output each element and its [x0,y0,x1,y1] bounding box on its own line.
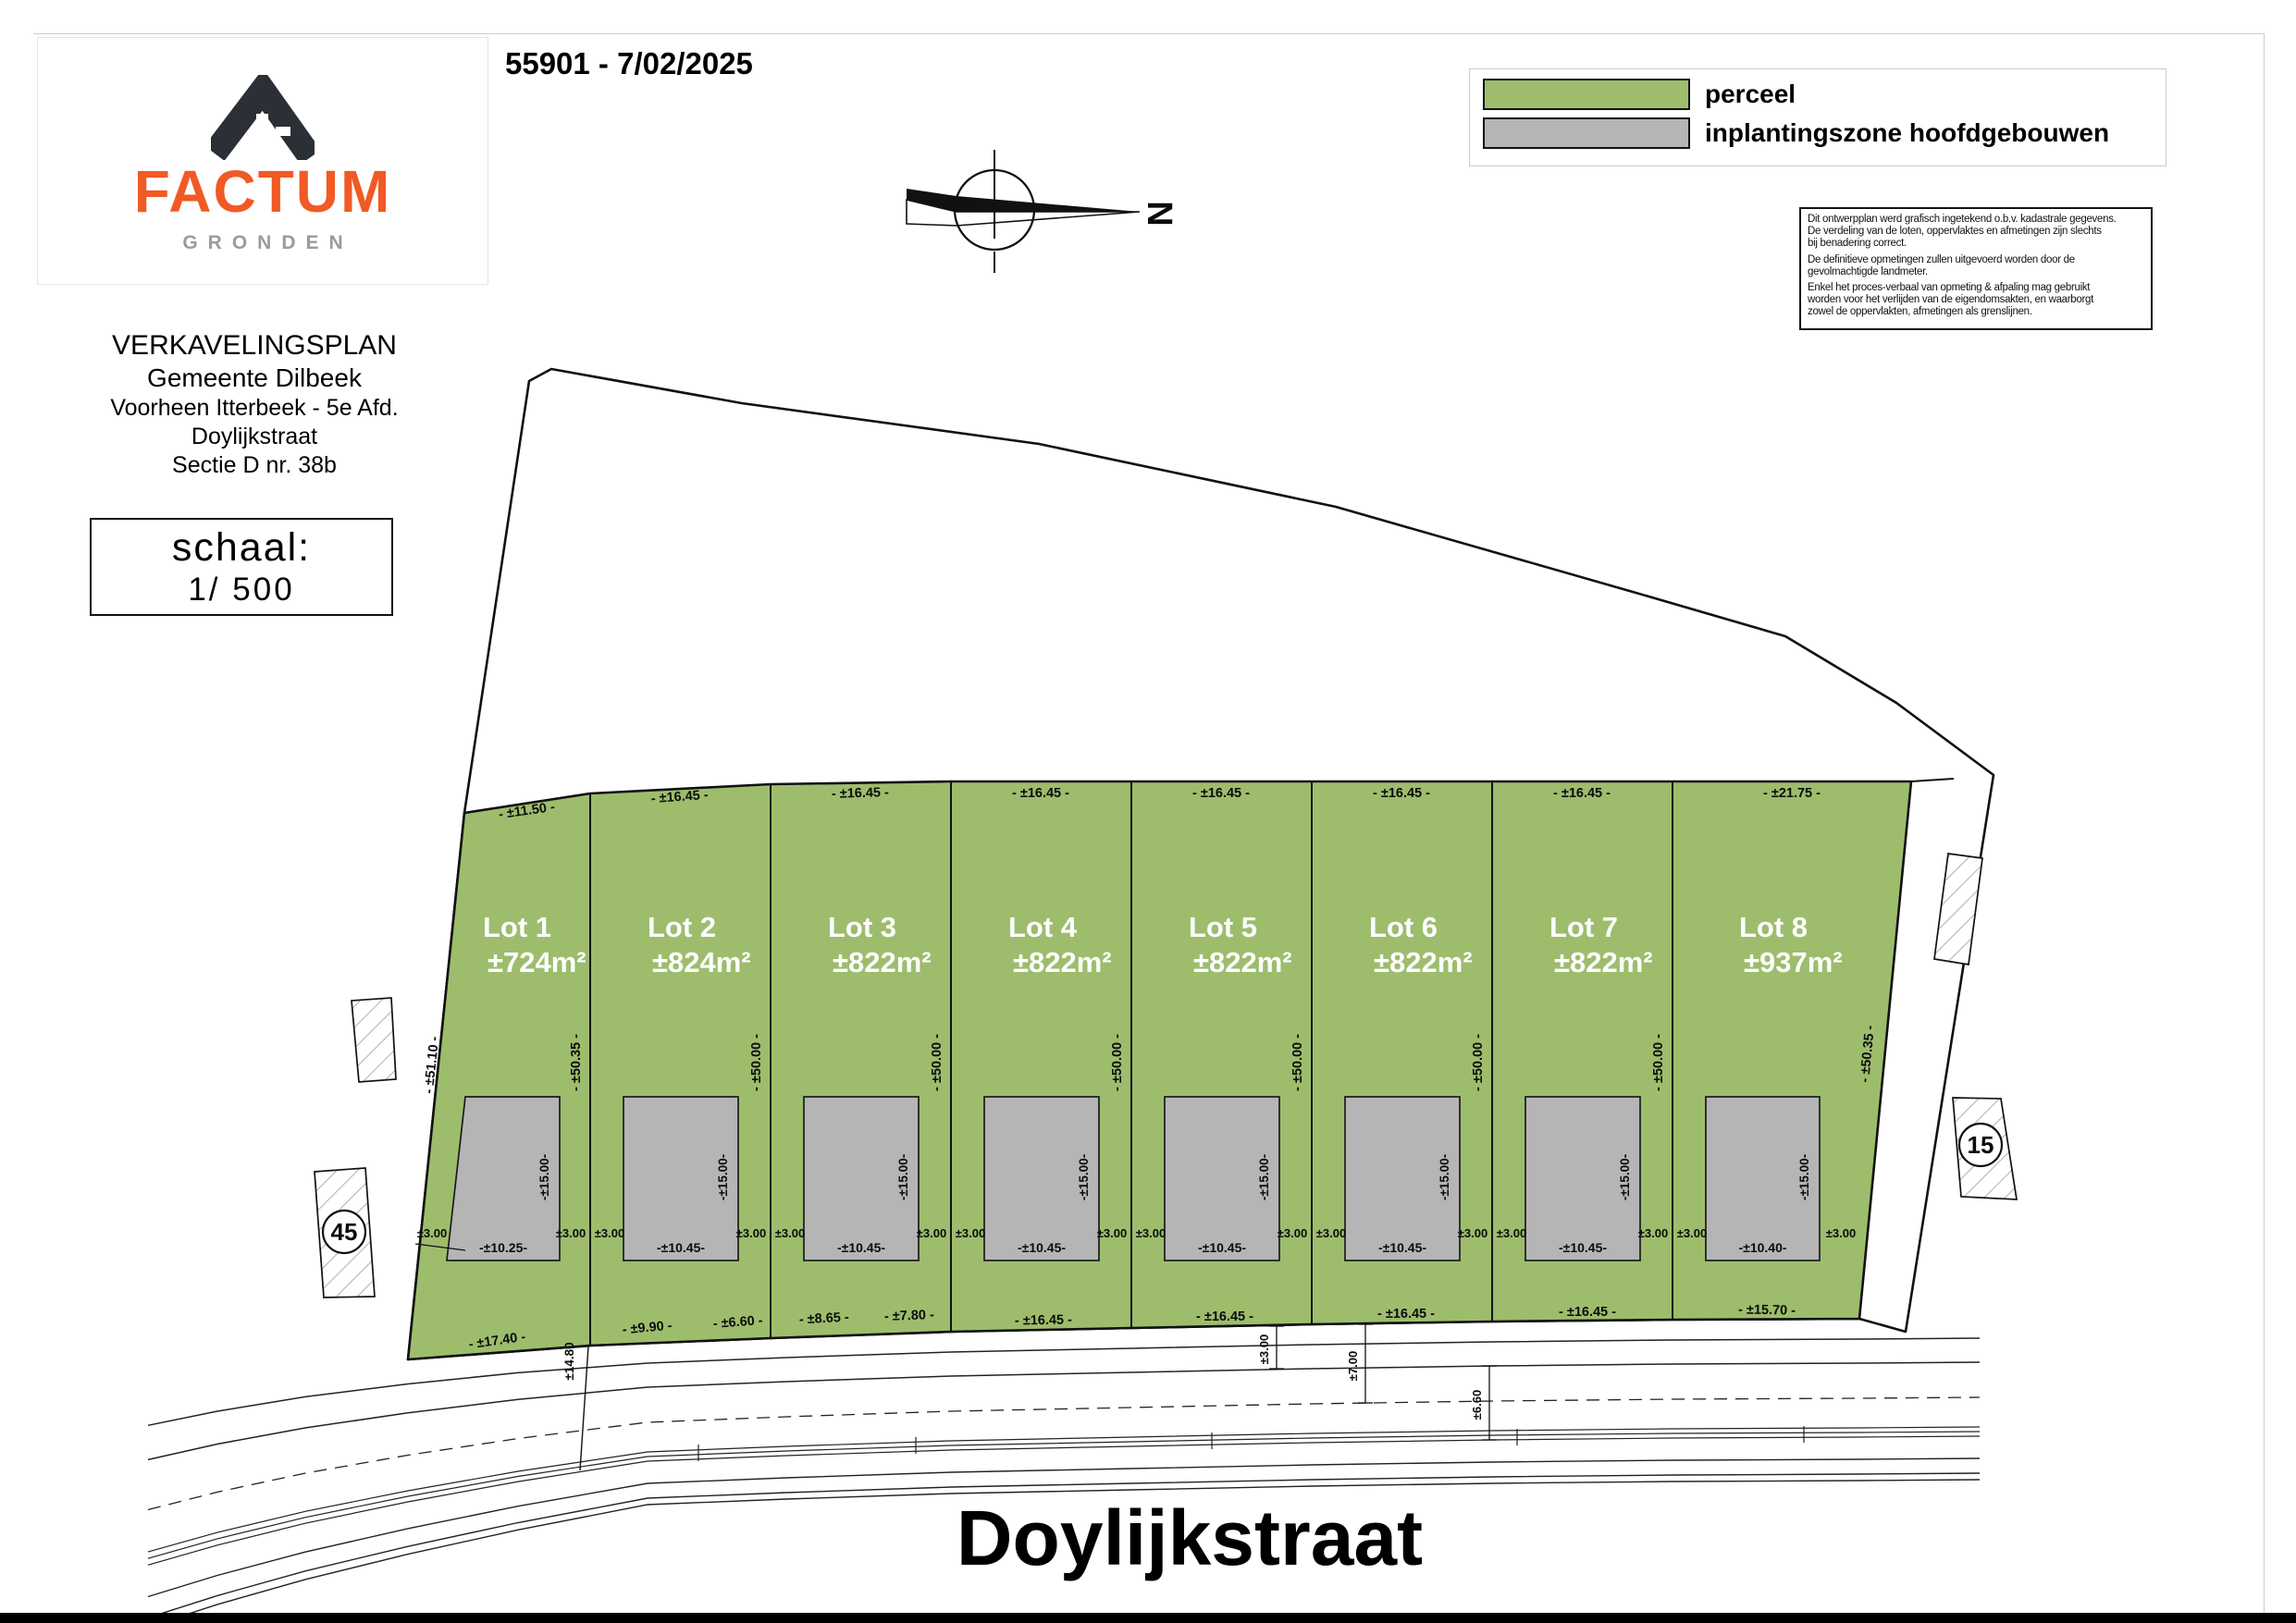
lot-area-label: ±937m² [1744,946,1843,978]
lot-depth-label: - ±50.00 - [749,1034,764,1091]
setback-label: ±3.00 [1278,1226,1307,1240]
setback-label: ±3.00 [736,1226,766,1240]
setback-label: ±3.00 [595,1226,624,1240]
setback-label: ±3.00 [1677,1226,1707,1240]
zone-width-label: -±10.45- [1198,1240,1246,1255]
setback-label: ±3.00 [956,1226,985,1240]
lot-top-width-label: - ±16.45 - [1012,786,1069,801]
setback-label: ±3.00 [1497,1226,1526,1240]
lot-depth-label: - ±50.00 - [1290,1034,1305,1091]
lot-top-width-label: - ±16.45 - [1373,786,1430,801]
frontage-width-label: - ±16.45 - [1196,1309,1253,1324]
zone-depth-label: -±15.00- [1797,1154,1811,1200]
zone-width-label: -±10.25- [479,1240,527,1255]
zone-depth-label: -±15.00- [1077,1154,1091,1200]
lot-depth-label: - ±50.00 - [1651,1034,1666,1091]
setback-label: ±3.00 [917,1226,946,1240]
frontage-width-label: - ±15.70 - [1738,1302,1796,1318]
road-dimension-label: ±14.80 [562,1342,576,1380]
lot-top-width-label: - ±16.45 - [1553,786,1611,801]
lot-name-label: Lot 1 [483,911,551,943]
lot-name-label: Lot 2 [648,911,716,943]
dimension-line [580,1346,588,1470]
lot-name-label: Lot 4 [1008,911,1078,943]
lot-area-label: ±822m² [1193,946,1292,978]
zone-width-label: -±10.45- [1378,1240,1426,1255]
setback-label: ±3.00 [556,1226,586,1240]
frontage-width-label: - ±16.45 - [1559,1305,1616,1320]
road-centerline-dashed [148,1397,1980,1510]
lot-depth-label: - ±50.00 - [1110,1034,1125,1091]
lot-depth-label: - ±50.00 - [930,1034,944,1091]
verkavelingsplan-sheet: FACTUM GRONDEN 55901 - 7/02/2025 perceel… [0,0,2296,1623]
road-edge-line [148,1362,1980,1459]
lot-area-label: ±822m² [1374,946,1473,978]
zone-width-label: -±10.45- [1018,1240,1066,1255]
setback-label: ±3.00 [1826,1226,1856,1240]
zone-depth-label: -±15.00- [896,1154,910,1200]
lot-name-label: Lot 3 [828,911,896,943]
setback-label: ±3.00 [1316,1226,1346,1240]
lot-area-label: ±824m² [652,946,751,978]
setback-label: ±3.00 [1638,1226,1668,1240]
lot-depth-label: - ±50.35 - [569,1034,584,1091]
parcel-strip [408,781,1911,1359]
setback-label: ±3.00 [417,1226,447,1240]
lot-area-label: ±822m² [1554,946,1653,978]
road-dimension-label: ±3.00 [1257,1334,1271,1364]
zone-depth-label: -±15.00- [1618,1154,1632,1200]
lot-top-width-label: - ±21.75 - [1763,786,1821,801]
lot-top-width-label: - ±16.45 - [832,785,890,802]
setback-label: ±3.00 [1136,1226,1166,1240]
zone-width-label: -±10.40- [1738,1240,1786,1255]
lot-name-label: Lot 6 [1369,911,1438,943]
frontage-width-label: - ±7.80 - [884,1308,935,1324]
setback-label: ±3.00 [775,1226,805,1240]
lot-area-label: ±822m² [1013,946,1112,978]
lot-name-label: Lot 7 [1549,911,1618,943]
site-plan-drawing: 4515 Lot 1±724m²Lot 2±824m²Lot 3±822m²Lo… [0,0,2296,1623]
lot-top-width-label: - ±16.45 - [1192,786,1250,801]
neighbor-building [352,998,396,1082]
zone-depth-label: -±15.00- [537,1154,551,1200]
zone-width-label: -±10.45- [657,1240,705,1255]
lot-area-label: ±724m² [488,946,586,978]
zone-width-label: -±10.45- [837,1240,885,1255]
street-name-label: Doylijkstraat [957,1494,1423,1581]
lot-name-label: Lot 5 [1189,911,1257,943]
frontage-width-label: - ±16.45 - [1377,1307,1435,1322]
zone-depth-label: -±15.00- [716,1154,730,1200]
house-number-left: 45 [331,1218,358,1246]
north-label: N [1140,201,1179,226]
zone-depth-label: -±15.00- [1438,1154,1451,1200]
frontage-width-label: - ±8.65 - [798,1310,849,1328]
zone-depth-label: -±15.00- [1257,1154,1271,1200]
sheet-bottom-border [0,1613,2296,1623]
road-dimension-label: ±7.00 [1346,1351,1360,1381]
house-number-right: 15 [1968,1131,1994,1159]
lot-name-label: Lot 8 [1739,911,1808,943]
lot-depth-label: - ±50.00 - [1471,1034,1486,1091]
lot-area-label: ±822m² [833,946,932,978]
frontage-width-label: - ±16.45 - [1015,1312,1072,1328]
road-dimension-label: ±6.60 [1470,1390,1484,1420]
setback-label: ±3.00 [1097,1226,1127,1240]
zone-width-label: -±10.45- [1559,1240,1607,1255]
setback-label: ±3.00 [1458,1226,1487,1240]
